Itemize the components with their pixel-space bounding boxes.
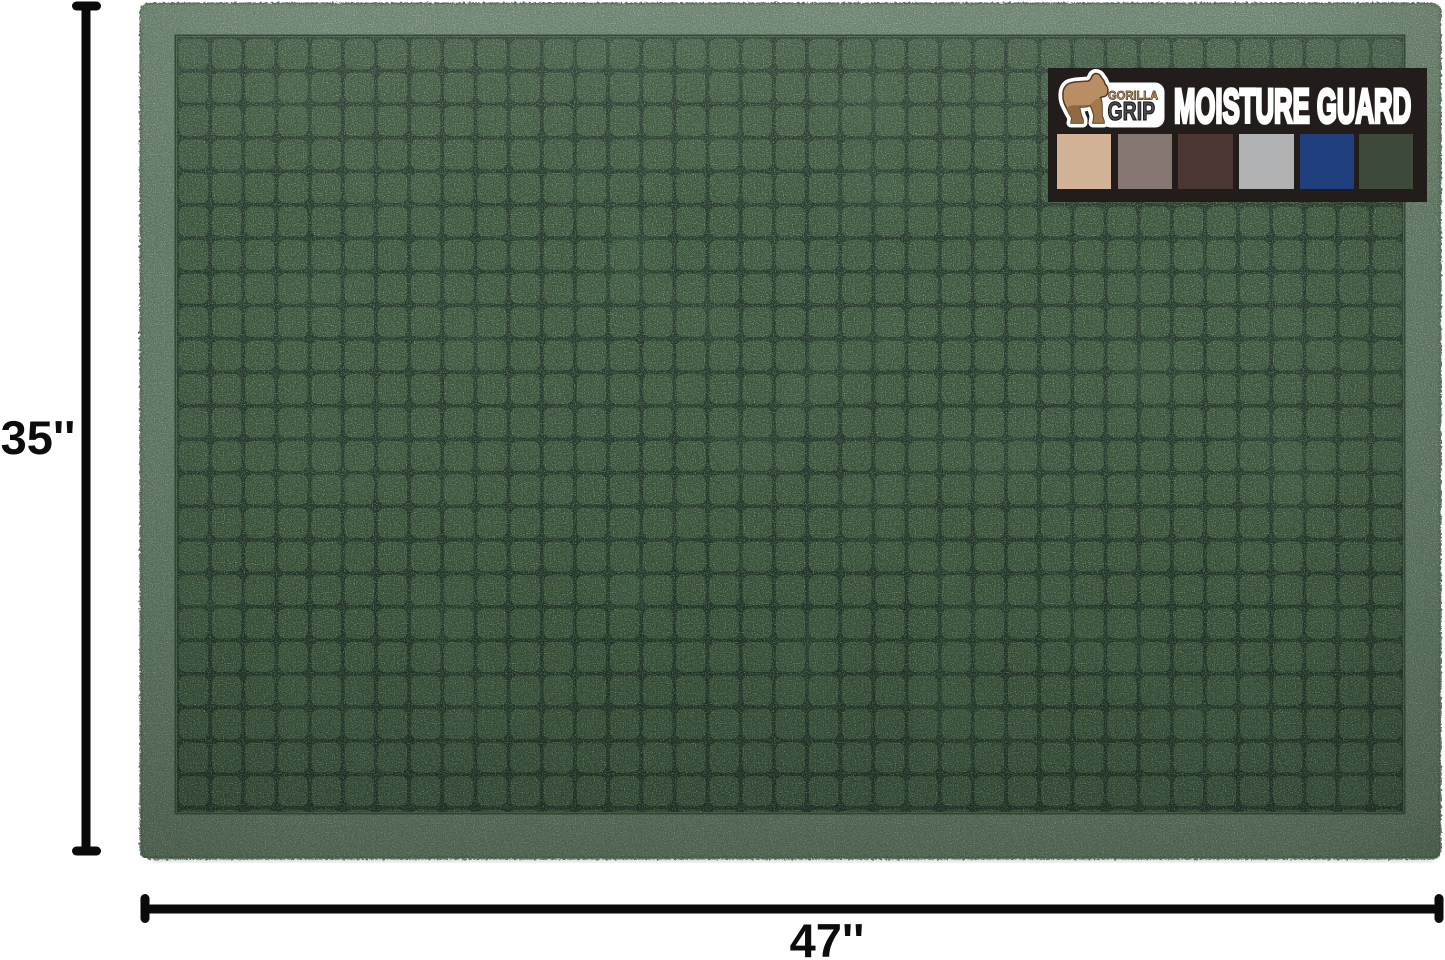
- svg-text:35'': 35'': [1, 411, 76, 464]
- svg-text:GRIP: GRIP: [1108, 96, 1156, 125]
- svg-text:47'': 47'': [790, 914, 865, 960]
- svg-text:MOISTURE GUARD: MOISTURE GUARD: [1174, 80, 1411, 134]
